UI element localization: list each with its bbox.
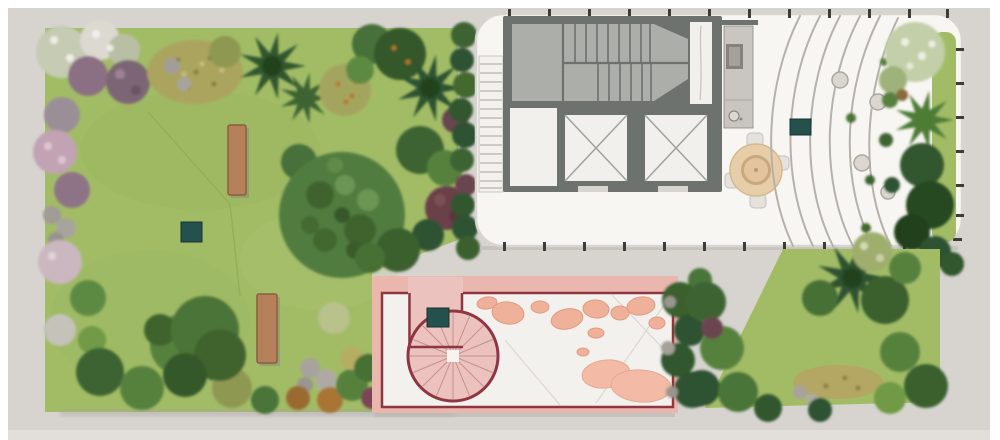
landscape-plan-canvas	[0, 0, 1000, 440]
door-opening	[578, 186, 608, 192]
bottom-paving-band	[8, 430, 990, 440]
bench-seat	[228, 125, 246, 195]
door-opening	[658, 186, 688, 192]
sink-icon	[729, 111, 739, 121]
bench-2	[257, 294, 280, 366]
planter-pot	[854, 155, 870, 171]
marker-courtyard[interactable]	[427, 308, 449, 327]
planter-pot	[832, 72, 848, 88]
roof-terrace	[476, 9, 964, 276]
spiral-center-post	[447, 350, 459, 362]
side-stairs	[479, 56, 503, 192]
elevator-lobby	[510, 108, 557, 186]
bench-seat	[257, 294, 277, 363]
marker-terrace[interactable]	[790, 119, 811, 135]
building-core	[503, 16, 722, 192]
site-plan	[0, 0, 1000, 440]
stepping-stone-courtyard	[372, 268, 712, 417]
marker-lawn[interactable]	[181, 222, 202, 242]
bench-1	[228, 125, 249, 198]
